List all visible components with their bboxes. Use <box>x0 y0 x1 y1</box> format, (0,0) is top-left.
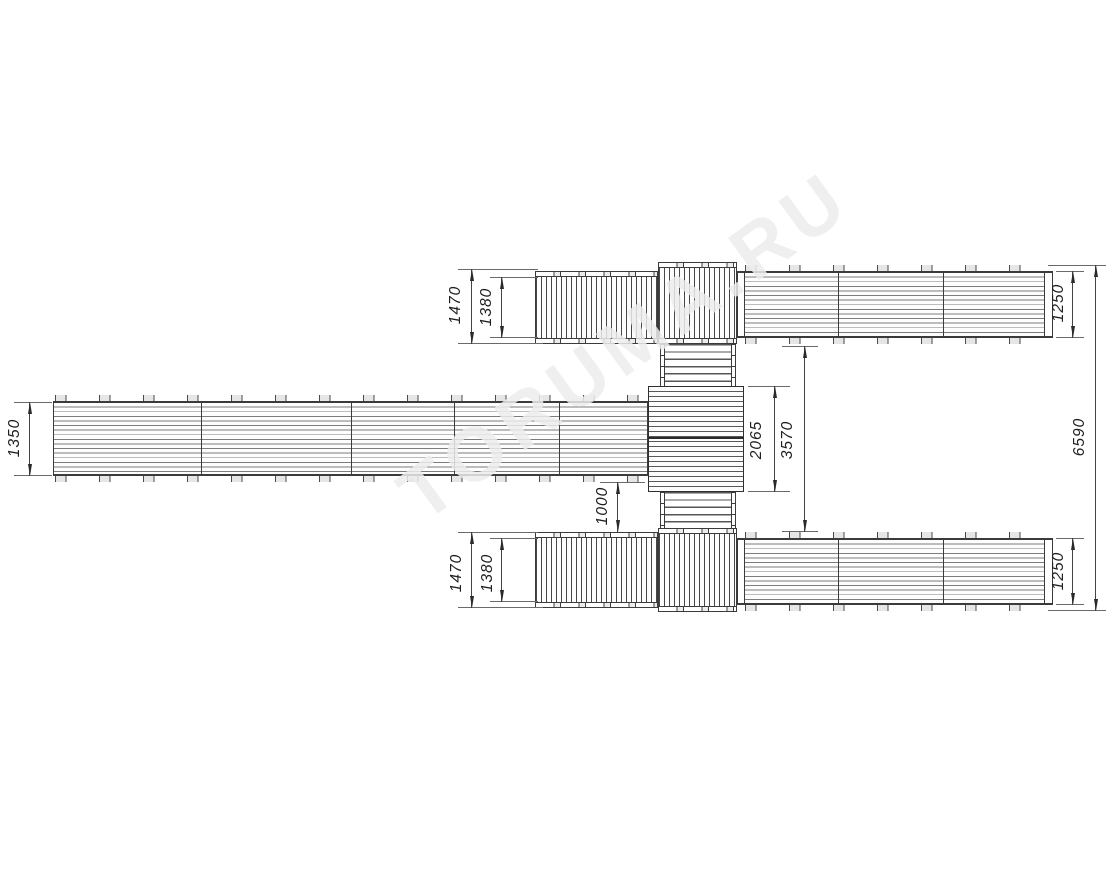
dim-line-1250-bottom-right <box>1072 538 1073 605</box>
top-right-walkway <box>737 271 1053 338</box>
top-ladder-right-rail <box>731 344 736 386</box>
dim-label-1380-top: 1380 <box>478 272 496 342</box>
dim-label-1470-bottom: 1470 <box>448 538 466 608</box>
central-platform-joint <box>649 437 743 439</box>
dim-line-1470-bottom <box>471 532 472 608</box>
top-ladder-rungs <box>665 344 731 386</box>
dim-line-1380-bottom <box>501 538 502 602</box>
bottom-bridge <box>535 532 658 608</box>
bottom-tower-slats <box>659 534 736 606</box>
walkway-section-divider <box>559 403 560 474</box>
dim-line-6590-overall <box>1095 265 1096 611</box>
dim-line-1350-left <box>29 402 30 476</box>
extension-line <box>490 538 538 539</box>
bottom-ladder <box>660 492 736 528</box>
central-platform <box>648 386 744 492</box>
dim-label-2065-center: 2065 <box>748 405 766 475</box>
left-walkway <box>53 401 648 476</box>
walkway-endcap <box>738 540 745 603</box>
dim-label-6590-overall: 6590 <box>1071 402 1089 472</box>
walkway-section-divider <box>351 403 352 474</box>
bottom-ladder-right-rail <box>731 492 736 528</box>
extension-line <box>14 475 52 476</box>
bottom-bridge-rail <box>536 602 657 608</box>
dim-line-1380-top <box>501 277 502 338</box>
walkway-section-divider <box>454 403 455 474</box>
extension-line <box>490 601 538 602</box>
walkway-section-divider <box>943 540 944 603</box>
dim-line-1000-gap <box>617 482 618 532</box>
extension-line <box>782 346 818 347</box>
extension-line <box>490 277 538 278</box>
extension-line <box>490 337 538 338</box>
dim-label-1000-gap: 1000 <box>594 471 612 541</box>
walkway-section-divider <box>201 403 202 474</box>
walkway-endcap <box>738 273 745 336</box>
dim-line-3570-span <box>804 346 805 532</box>
dim-label-1470-top: 1470 <box>447 270 465 340</box>
top-tower-platform <box>658 262 737 344</box>
bottom-right-walkway <box>737 538 1053 605</box>
extension-line <box>748 386 790 387</box>
dim-label-1250-bottom-right: 1250 <box>1050 536 1068 606</box>
top-bridge <box>535 271 658 344</box>
extension-line <box>748 491 790 492</box>
top-ladder <box>660 344 736 386</box>
walkway-section-divider <box>838 540 839 603</box>
left-walkway-bottom-tabs <box>55 476 646 482</box>
dim-label-1350-left: 1350 <box>6 403 24 473</box>
top-bridge-rail <box>536 338 657 344</box>
dim-label-1250-top-right: 1250 <box>1050 268 1068 338</box>
top-right-walkway-bottom-tabs <box>745 338 1048 344</box>
bottom-right-walkway-bottom-tabs <box>745 605 1048 611</box>
dim-line-2065-center <box>774 386 775 492</box>
walkway-section-divider <box>838 273 839 336</box>
technical-drawing-canvas: 1470 1380 1250 6590 1350 2065 3570 1000 … <box>0 0 1110 879</box>
dim-line-1250-top-right <box>1072 271 1073 338</box>
extension-line <box>782 531 818 532</box>
bottom-ladder-rungs <box>665 492 731 528</box>
walkway-section-divider <box>943 273 944 336</box>
bottom-bridge-slats <box>536 538 657 602</box>
dim-line-1470-top <box>471 269 472 344</box>
bottom-tower-rail <box>659 606 736 612</box>
dim-label-1380-bottom: 1380 <box>479 538 497 608</box>
top-bridge-slats <box>536 277 657 338</box>
bottom-tower-platform <box>658 528 737 612</box>
dim-label-3570-span: 3570 <box>779 405 797 475</box>
top-tower-slats <box>659 268 736 338</box>
